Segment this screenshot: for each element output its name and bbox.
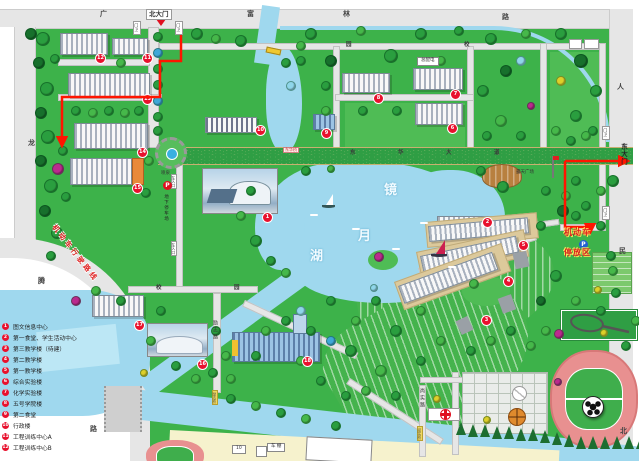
tree bbox=[171, 361, 181, 371]
road-label-guang: 广 bbox=[100, 11, 107, 18]
tree bbox=[631, 316, 639, 326]
tree bbox=[358, 106, 368, 116]
donghua-bridge-sign: 东华桥 bbox=[283, 147, 299, 153]
tree bbox=[226, 394, 236, 404]
soccer-ball-icon bbox=[582, 396, 604, 418]
avenue-label-dong: 东 bbox=[350, 151, 356, 157]
map-marker-13: 13 bbox=[142, 94, 153, 105]
tree bbox=[596, 221, 606, 231]
car-entrance-sign: 车入口 bbox=[171, 241, 177, 256]
sailboat-red bbox=[436, 240, 445, 254]
tree bbox=[71, 106, 81, 116]
tree bbox=[326, 296, 336, 306]
tree bbox=[384, 49, 398, 63]
road-label-lu-west: 路 bbox=[90, 426, 97, 433]
map-marker-2: 2 bbox=[482, 217, 493, 228]
tree bbox=[88, 108, 98, 118]
legend-label: 第一食堂、学生活动中心 bbox=[13, 333, 77, 342]
tree bbox=[191, 28, 203, 40]
tree bbox=[541, 326, 551, 336]
tree bbox=[281, 316, 291, 326]
tree bbox=[33, 57, 45, 69]
lizhi-bridge-sign: 励志桥 bbox=[212, 390, 218, 405]
tree bbox=[251, 351, 261, 361]
tree bbox=[153, 48, 163, 58]
tree bbox=[594, 286, 602, 294]
map-marker-3: 3 bbox=[481, 315, 492, 326]
tree bbox=[541, 186, 551, 196]
east-gate-sign: 东大门 bbox=[620, 143, 627, 166]
tree bbox=[301, 166, 311, 176]
tree bbox=[40, 82, 54, 96]
lake-name-hu: 湖 bbox=[310, 250, 323, 263]
tree bbox=[341, 391, 351, 401]
legend-number: 8 bbox=[2, 400, 9, 407]
legend-item: 12工程训练中心B bbox=[2, 442, 77, 453]
tree bbox=[211, 34, 221, 44]
tree bbox=[46, 251, 56, 261]
legend-item: 6综合实验楼 bbox=[2, 376, 77, 387]
lizhi-road-label: 励志路 bbox=[212, 320, 217, 341]
tree bbox=[251, 401, 261, 411]
road-label-bei: 北 bbox=[620, 428, 627, 435]
tree bbox=[436, 336, 446, 346]
generated-layer: 广富林路人民北龙腾路园校校园东华大道励志路尚实路北大门东大门门卫门卫门卫门卫镜月… bbox=[0, 0, 639, 461]
map-marker-9: 9 bbox=[321, 128, 332, 139]
legend-item: 8五号学院楼 bbox=[2, 398, 77, 409]
tree bbox=[104, 106, 114, 116]
tree bbox=[521, 29, 531, 39]
map-marker-14: 14 bbox=[137, 147, 148, 158]
sailboat-white-hull bbox=[322, 205, 335, 208]
tree bbox=[331, 421, 341, 431]
tree bbox=[361, 386, 371, 396]
tree bbox=[153, 126, 163, 136]
tree bbox=[296, 41, 306, 51]
tree bbox=[134, 106, 144, 116]
campus-road-label: 校 bbox=[464, 43, 470, 49]
legend-item: 2第一食堂、学生活动中心 bbox=[2, 332, 77, 343]
basketball-icon bbox=[508, 408, 526, 426]
avenue-label-da: 大 bbox=[446, 151, 452, 157]
legend-label: 综合实验楼 bbox=[13, 377, 42, 386]
campus-road-label: 园 bbox=[346, 43, 352, 49]
guard-box: 门卫 bbox=[602, 206, 610, 220]
tree bbox=[588, 436, 598, 449]
tree bbox=[540, 430, 550, 443]
legend-item: 3第三教学楼（待建） bbox=[2, 343, 77, 354]
volleyball-icon bbox=[512, 386, 527, 401]
tree bbox=[485, 33, 497, 45]
road-label-teng: 腾 bbox=[38, 278, 45, 285]
motor-parking-label-1: 机动车 bbox=[564, 229, 591, 237]
tree bbox=[390, 325, 402, 337]
tree bbox=[276, 408, 286, 418]
tree bbox=[156, 306, 166, 316]
shangshi-bridge-sign: 尚实桥 bbox=[417, 426, 423, 441]
wave bbox=[310, 214, 318, 216]
tree bbox=[581, 201, 591, 211]
legend: 1图文信息中心2第一食堂、学生活动中心3第三教学楼（待建）4第二教学楼5第一教学… bbox=[2, 321, 77, 453]
parking-icon: P bbox=[163, 181, 172, 190]
tree bbox=[526, 341, 536, 351]
tree bbox=[468, 424, 478, 437]
tree bbox=[528, 428, 538, 441]
legend-label: 图文信息中心 bbox=[13, 322, 48, 331]
tree bbox=[607, 175, 619, 187]
tree bbox=[391, 391, 401, 401]
tree bbox=[35, 155, 47, 167]
tree bbox=[191, 374, 201, 384]
tree bbox=[504, 426, 514, 439]
tree bbox=[554, 378, 562, 386]
tree bbox=[221, 351, 231, 361]
avenue-label-dao: 道 bbox=[494, 151, 500, 157]
legend-label: 工程训练中心A bbox=[13, 432, 52, 441]
tree bbox=[281, 58, 291, 68]
tree bbox=[574, 54, 588, 68]
tree bbox=[486, 336, 496, 346]
lake-name-yue: 月 bbox=[358, 230, 371, 243]
legend-number: 1 bbox=[2, 323, 9, 330]
tree bbox=[596, 186, 606, 196]
tree bbox=[561, 191, 571, 201]
tree bbox=[153, 96, 163, 106]
tree bbox=[325, 55, 337, 67]
guard-box: 门卫 bbox=[175, 21, 183, 35]
tree bbox=[261, 326, 271, 336]
road-label-fu: 富 bbox=[247, 11, 254, 18]
tree bbox=[566, 136, 576, 146]
tree bbox=[497, 181, 509, 193]
guard-box: 门卫 bbox=[133, 21, 141, 35]
tree bbox=[286, 81, 296, 91]
tree bbox=[41, 130, 55, 144]
tree bbox=[153, 64, 163, 74]
tree bbox=[476, 166, 486, 176]
tree bbox=[554, 329, 564, 339]
tree bbox=[516, 131, 526, 141]
tree bbox=[52, 163, 64, 175]
lake-name-jing: 镜 bbox=[384, 184, 397, 197]
tree bbox=[345, 345, 357, 357]
campus-map: 1图文信息中心2第一食堂、学生活动中心3第三教学楼（待建）4第二教学楼5第一教学… bbox=[0, 0, 639, 461]
tree bbox=[36, 32, 50, 46]
tree bbox=[415, 28, 427, 40]
tree bbox=[612, 436, 622, 449]
tree bbox=[536, 296, 546, 306]
tree bbox=[208, 368, 218, 378]
road-label-ren: 人 bbox=[617, 84, 624, 91]
tree bbox=[321, 106, 331, 116]
map-marker-1: 1 bbox=[262, 212, 273, 223]
legend-label: 第三教学楼（待建） bbox=[13, 344, 65, 353]
road-label-lin: 林 bbox=[343, 11, 350, 18]
open-plaza-label: 露天广场 bbox=[516, 171, 534, 176]
tree bbox=[371, 296, 381, 306]
legend-number: 9 bbox=[2, 411, 9, 418]
legend-item: 10行政楼 bbox=[2, 420, 77, 431]
campus-road-label: 园 bbox=[234, 286, 240, 292]
tree bbox=[91, 286, 101, 296]
avenue-label-hua: 华 bbox=[398, 151, 404, 157]
tree bbox=[516, 56, 526, 66]
tree bbox=[551, 126, 561, 136]
power-station-sign: 总配电 bbox=[417, 57, 439, 66]
legend-item: 1图文信息中心 bbox=[2, 321, 77, 332]
tree bbox=[500, 65, 512, 77]
tree bbox=[516, 428, 526, 441]
tree bbox=[58, 146, 68, 156]
map-marker-12: 12 bbox=[95, 53, 106, 64]
tree bbox=[144, 156, 154, 166]
tree bbox=[621, 341, 631, 351]
tree bbox=[327, 165, 335, 173]
map-marker-6: 6 bbox=[447, 123, 458, 134]
map-marker-16: 16 bbox=[197, 359, 208, 370]
tree bbox=[146, 336, 156, 346]
tree bbox=[296, 306, 306, 316]
tree bbox=[454, 26, 464, 36]
legend-item: 9第二食堂 bbox=[2, 409, 77, 420]
sailboat-white bbox=[326, 194, 333, 205]
tree bbox=[39, 205, 51, 217]
tree bbox=[608, 266, 618, 276]
tree bbox=[600, 329, 608, 337]
tree bbox=[550, 270, 562, 282]
legend-number: 2 bbox=[2, 334, 9, 341]
tree bbox=[236, 211, 246, 221]
tree bbox=[483, 416, 491, 424]
tree bbox=[581, 131, 591, 141]
legend-label: 第一教学楼 bbox=[13, 366, 42, 375]
shangshi-road-label: 尚实路 bbox=[419, 388, 424, 409]
tree bbox=[571, 176, 581, 186]
tree bbox=[316, 376, 326, 386]
legend-number: 12 bbox=[2, 444, 9, 451]
tree bbox=[555, 28, 567, 40]
tree bbox=[571, 296, 581, 306]
tree bbox=[44, 179, 58, 193]
tree bbox=[416, 356, 426, 366]
tree bbox=[456, 422, 466, 435]
tree bbox=[536, 221, 546, 231]
tree bbox=[370, 284, 378, 292]
legend-number: 6 bbox=[2, 378, 9, 385]
tree bbox=[374, 252, 384, 262]
tree bbox=[392, 106, 402, 116]
tree bbox=[35, 107, 47, 119]
tree bbox=[492, 426, 502, 439]
legend-item: 5第一教学楼 bbox=[2, 365, 77, 376]
tree bbox=[153, 32, 163, 42]
campus-road-label: 校 bbox=[156, 286, 162, 292]
legend-item: 7化学实验楼 bbox=[2, 387, 77, 398]
fountain-label: 喷泉 bbox=[161, 172, 170, 177]
map-marker-5: 5 bbox=[518, 240, 529, 251]
tree bbox=[576, 436, 586, 449]
tree bbox=[564, 434, 574, 447]
legend-number: 10 bbox=[2, 422, 9, 429]
car-entrance-sign: 车入口 bbox=[171, 174, 177, 189]
motor-parking-label-2: 停放区 bbox=[564, 249, 591, 257]
vehicle-route-label: 机动车行驶路线 bbox=[50, 224, 99, 283]
tree bbox=[326, 336, 336, 346]
tree bbox=[321, 81, 331, 91]
legend-number: 5 bbox=[2, 367, 9, 374]
tree bbox=[140, 369, 148, 377]
map-marker-15: 15 bbox=[132, 183, 143, 194]
tree bbox=[596, 306, 606, 316]
tree bbox=[557, 205, 569, 217]
road-label-lu: 路 bbox=[502, 14, 509, 21]
underground-parking-label: 地下停车场 bbox=[163, 194, 168, 222]
tree bbox=[153, 112, 163, 122]
sailboat-red-hull bbox=[431, 254, 447, 257]
tree bbox=[356, 26, 366, 36]
tree bbox=[527, 102, 535, 110]
tree bbox=[25, 28, 37, 40]
building-10-sign: 10 bbox=[232, 445, 246, 454]
tree bbox=[153, 80, 163, 90]
road-label-min: 民 bbox=[619, 248, 626, 255]
legend-label: 化学实验楼 bbox=[13, 388, 42, 397]
tree bbox=[590, 85, 602, 97]
map-marker-17: 17 bbox=[134, 320, 145, 331]
tree bbox=[433, 395, 441, 403]
legend-label: 工程训练中心B bbox=[13, 443, 52, 452]
tree bbox=[226, 374, 236, 384]
tree bbox=[606, 251, 616, 261]
map-marker-7: 7 bbox=[450, 89, 461, 100]
legend-item: 11工程训练中心A bbox=[2, 431, 77, 442]
tree bbox=[375, 365, 387, 377]
legend-label: 第二食堂 bbox=[13, 410, 36, 419]
tree bbox=[235, 35, 247, 47]
legend-number: 7 bbox=[2, 389, 9, 396]
wave bbox=[420, 222, 428, 224]
legend-label: 第二教学楼 bbox=[13, 355, 42, 364]
map-marker-11: 11 bbox=[142, 53, 153, 64]
legend-item: 4第二教学楼 bbox=[2, 354, 77, 365]
map-marker-8: 8 bbox=[373, 93, 384, 104]
bike-shed-sign: 车 棚 bbox=[267, 443, 285, 452]
tree bbox=[301, 414, 311, 424]
tree bbox=[624, 436, 634, 449]
tree bbox=[296, 56, 306, 66]
tree bbox=[477, 85, 489, 97]
tree bbox=[571, 211, 581, 221]
tree bbox=[416, 306, 426, 316]
tree bbox=[266, 256, 276, 266]
tree bbox=[50, 54, 60, 64]
map-marker-18: 18 bbox=[302, 356, 313, 367]
map-marker-10: 10 bbox=[255, 125, 266, 136]
north-gate-sign: 北大门 bbox=[146, 9, 172, 20]
tree bbox=[116, 296, 126, 306]
tree bbox=[480, 424, 490, 437]
wave bbox=[448, 266, 456, 268]
guard-box: 门卫 bbox=[602, 126, 610, 140]
tree bbox=[250, 235, 262, 247]
legend-label: 五号学院楼 bbox=[13, 399, 42, 408]
tree bbox=[570, 110, 582, 122]
tree bbox=[281, 268, 291, 278]
tree bbox=[466, 346, 476, 356]
tree bbox=[116, 58, 126, 68]
map-marker-4: 4 bbox=[503, 276, 514, 287]
tree bbox=[556, 76, 566, 86]
tree bbox=[305, 28, 317, 40]
tree bbox=[61, 192, 71, 202]
tree bbox=[306, 326, 316, 336]
tree bbox=[600, 436, 610, 449]
tree bbox=[351, 316, 361, 326]
road-label-long: 龙 bbox=[28, 140, 35, 147]
tree bbox=[495, 115, 507, 127]
tree bbox=[469, 279, 479, 289]
legend-number: 11 bbox=[2, 433, 9, 440]
wave bbox=[392, 248, 400, 250]
legend-label: 行政楼 bbox=[13, 421, 30, 430]
tree bbox=[71, 296, 81, 306]
tree bbox=[246, 186, 256, 196]
tree bbox=[120, 108, 130, 118]
legend-number: 4 bbox=[2, 356, 9, 363]
tree bbox=[552, 432, 562, 445]
legend-number: 3 bbox=[2, 345, 9, 352]
tree bbox=[506, 326, 516, 336]
tree bbox=[611, 288, 621, 298]
tree bbox=[482, 131, 492, 141]
